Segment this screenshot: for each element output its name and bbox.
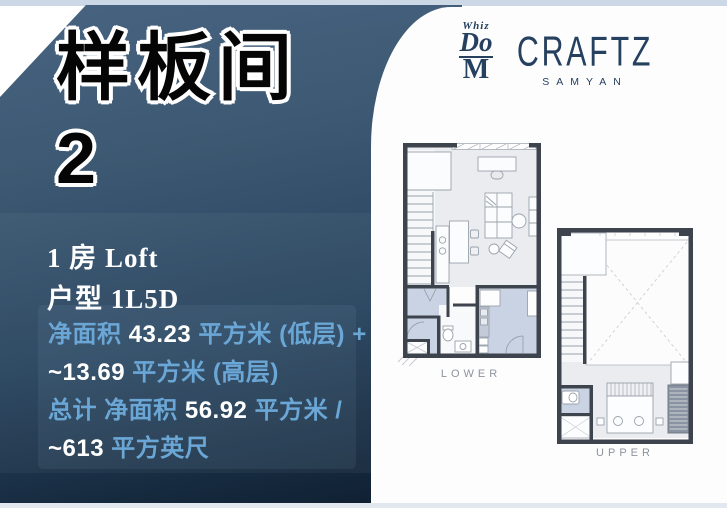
area-line-sqft: ~613 平方英尺 [48, 430, 356, 468]
brand-name-block: CRAFTZ SAMYAN [511, 28, 659, 88]
area-unit: 平方米 / [247, 397, 342, 424]
upper-plan-label: UPPER [550, 447, 700, 459]
area-label: 净面积 [48, 321, 129, 348]
logo-do-text: Do [460, 30, 493, 56]
area-unit: 平方米 (高层) [125, 359, 279, 386]
brand-subname: SAMYAN [542, 76, 628, 88]
title-text: 样板间 [56, 21, 299, 114]
whizdom-mark-icon: Whiz Do M [451, 20, 501, 81]
area-spec-block: 净面积 43.23 平方米 (低层) + ~13.69 平方米 (高层) 总计 … [38, 305, 356, 469]
area-line-lower: 净面积 43.23 平方米 (低层) + [48, 316, 356, 354]
upper-floor-plan [550, 220, 700, 448]
lower-floor-plan [395, 138, 547, 378]
flyer-page: 样板间 2 1 房 Loft 户型 1L5D 净面积 43.23 平方米 (低层… [0, 0, 727, 508]
brand-name: CRAFTZ [517, 28, 653, 76]
brand-logo: Whiz Do M CRAFTZ SAMYAN [451, 20, 659, 88]
area-value: ~613 [48, 435, 104, 462]
page-title: 样板间 2 [56, 21, 299, 205]
area-line-upper: ~13.69 平方米 (高层) [48, 354, 356, 392]
room-type: 1 房 Loft [47, 236, 159, 275]
area-value: ~13.69 [48, 359, 125, 386]
area-value: 56.92 [185, 397, 248, 424]
area-value: 43.23 [129, 321, 192, 348]
lower-plan-label: LOWER [395, 368, 547, 380]
area-line-total: 总计 净面积 56.92 平方米 / [48, 392, 356, 430]
area-label: 总计 净面积 [48, 397, 185, 424]
bottom-border-strip [0, 503, 727, 508]
area-unit: 平方英尺 [104, 435, 209, 462]
logo-m-text: M [459, 56, 493, 81]
area-unit: 平方米 (低层) + [191, 321, 367, 348]
unit-number: 2 [56, 114, 299, 205]
